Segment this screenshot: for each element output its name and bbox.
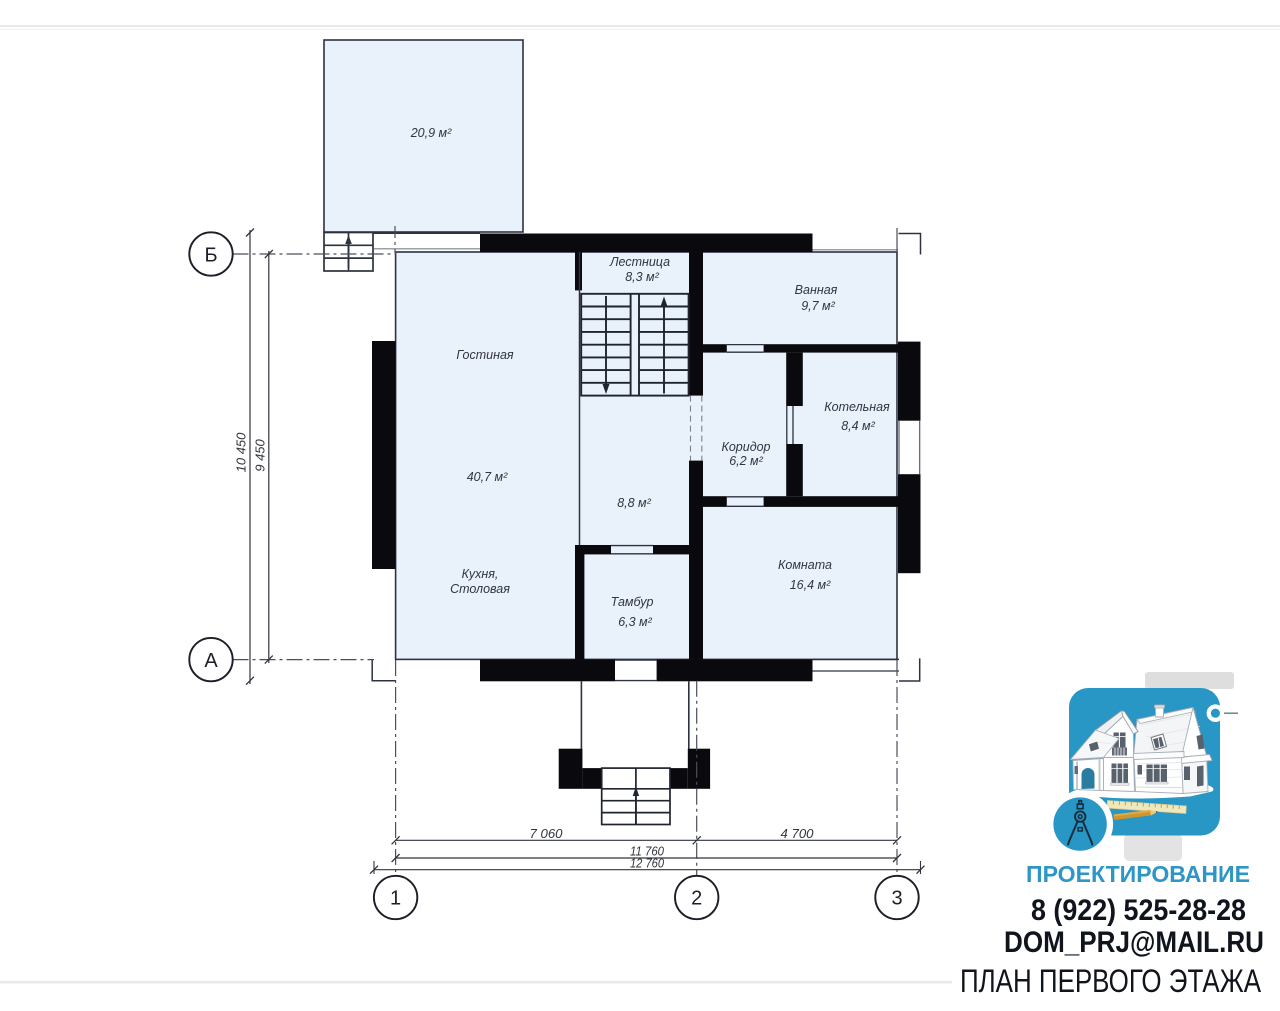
svg-text:10 450: 10 450 [234,432,249,473]
svg-text:Гостиная: Гостиная [456,348,513,362]
svg-text:9,7 м²: 9,7 м² [801,299,835,313]
svg-text:Лестница: Лестница [609,255,670,269]
svg-text:Котельная: Котельная [824,400,890,414]
svg-text:3: 3 [891,888,902,910]
svg-text:20,9 м²: 20,9 м² [410,126,452,140]
svg-text:6,3 м²: 6,3 м² [618,615,652,629]
svg-text:12 760: 12 760 [630,855,665,870]
svg-text:Тамбур: Тамбур [611,595,654,609]
svg-text:8,8 м²: 8,8 м² [617,496,651,510]
svg-text:Комната: Комната [778,558,832,572]
svg-text:Б: Б [204,244,217,266]
svg-text:6,2 м²: 6,2 м² [729,454,763,468]
svg-text:9 450: 9 450 [252,438,267,471]
svg-text:ПРОЕКТИРОВАНИЕ: ПРОЕКТИРОВАНИЕ [1026,861,1250,887]
svg-text:16,4 м²: 16,4 м² [790,578,831,592]
svg-text:7 060: 7 060 [530,826,564,841]
svg-text:8 (922) 525-28-28: 8 (922) 525-28-28 [1031,894,1246,927]
svg-text:Столовая: Столовая [450,582,510,596]
svg-text:4 700: 4 700 [781,826,815,841]
svg-text:Коридор: Коридор [721,440,770,454]
svg-text:8,3 м²: 8,3 м² [625,270,659,284]
svg-text:2: 2 [691,888,702,910]
svg-text:ПЛАН ПЕРВОГО ЭТАЖА: ПЛАН ПЕРВОГО ЭТАЖА [960,963,1262,999]
svg-text:1: 1 [390,888,401,910]
svg-text:Ванная: Ванная [795,283,838,297]
svg-text:8,4 м²: 8,4 м² [841,419,875,433]
svg-text:Кухня,: Кухня, [462,567,499,581]
svg-text:А: А [204,650,218,672]
svg-text:40,7 м²: 40,7 м² [467,470,508,484]
svg-text:DOM_PRJ@MAIL.RU: DOM_PRJ@MAIL.RU [1004,926,1264,959]
